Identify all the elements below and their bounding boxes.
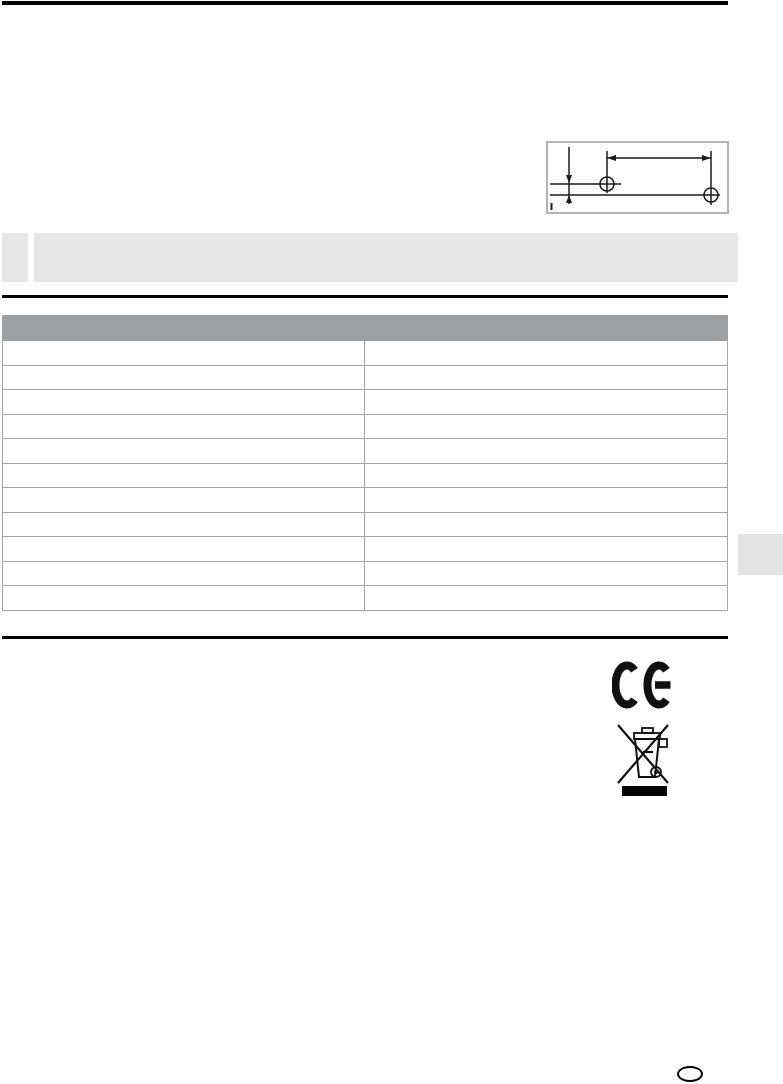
table-cell-label xyxy=(3,439,365,464)
manual-page xyxy=(0,0,783,1084)
table-row xyxy=(3,512,728,537)
table-cell-value xyxy=(365,365,728,390)
table-row xyxy=(3,341,728,366)
table-row xyxy=(3,439,728,464)
spec-table-body xyxy=(3,341,728,611)
mid-rule-divider xyxy=(2,295,728,298)
top-rule-divider xyxy=(2,1,728,5)
spec-table-header xyxy=(3,316,728,341)
spec-table-header-row xyxy=(3,316,728,341)
section-side-tab xyxy=(738,534,783,575)
table-cell-value xyxy=(365,512,728,537)
table-cell-label xyxy=(3,512,365,537)
table-cell-value xyxy=(365,537,728,562)
table-row xyxy=(3,586,728,611)
spec-table-section xyxy=(2,315,728,611)
table-row xyxy=(3,463,728,488)
table-row xyxy=(3,488,728,513)
dimension-drawing-icon xyxy=(548,143,727,212)
table-cell-value xyxy=(365,414,728,439)
table-cell-label xyxy=(3,414,365,439)
table-cell-value xyxy=(365,561,728,586)
table-cell-label xyxy=(3,390,365,415)
table-cell-value xyxy=(365,439,728,464)
table-cell-label xyxy=(3,586,365,611)
ce-mark-icon xyxy=(612,661,676,709)
table-row xyxy=(3,561,728,586)
table-cell-label xyxy=(3,463,365,488)
weee-icon xyxy=(615,720,671,798)
bottom-rule-divider xyxy=(2,636,728,639)
table-cell-label xyxy=(3,341,365,366)
table-cell-value xyxy=(365,341,728,366)
table-cell-value xyxy=(365,488,728,513)
table-cell-label xyxy=(3,561,365,586)
table-cell-label xyxy=(3,488,365,513)
table-row xyxy=(3,365,728,390)
table-cell-label xyxy=(3,537,365,562)
drill-template-figure xyxy=(546,141,729,214)
table-cell-label xyxy=(3,365,365,390)
note-box xyxy=(34,233,738,282)
table-cell-value xyxy=(365,390,728,415)
note-marker-square xyxy=(2,233,28,282)
page-number-oval xyxy=(677,1066,703,1082)
table-row xyxy=(3,537,728,562)
table-row xyxy=(3,414,728,439)
table-row xyxy=(3,390,728,415)
spec-table xyxy=(2,315,728,611)
table-cell-value xyxy=(365,586,728,611)
table-cell-value xyxy=(365,463,728,488)
